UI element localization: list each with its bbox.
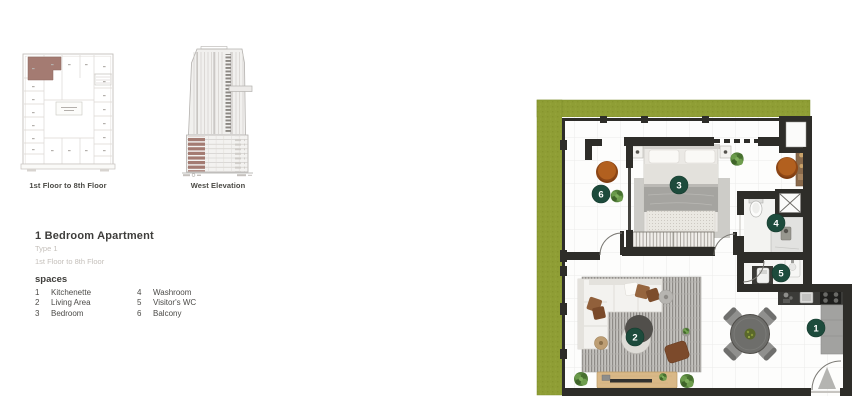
legend-num: 6 bbox=[137, 309, 153, 319]
badge-2: 2 bbox=[626, 328, 644, 346]
legend-label: Visitor's WC bbox=[153, 298, 196, 307]
plant bbox=[659, 373, 667, 381]
closet bbox=[786, 122, 806, 147]
armchair bbox=[596, 161, 618, 183]
tv bbox=[610, 379, 652, 383]
svg-text:4: 4 bbox=[773, 218, 779, 229]
plant bbox=[730, 152, 743, 165]
legend-label: Washroom bbox=[153, 288, 191, 297]
badge-4: 4 bbox=[767, 214, 785, 232]
unit-floors: 1st Floor to 8th Floor bbox=[35, 257, 104, 266]
floor-plan: 1 2 3 4 5 6 bbox=[530, 94, 867, 404]
legend-item-3: 3Bedroom bbox=[35, 309, 91, 319]
badge-3: 3 bbox=[670, 176, 688, 194]
dining-set bbox=[722, 306, 777, 361]
armchair bbox=[776, 157, 798, 179]
legend-num: 2 bbox=[35, 298, 51, 308]
legend-item-1: 1Kitchenette bbox=[35, 288, 91, 298]
elevation-dark-windows bbox=[226, 54, 233, 132]
legend-num: 3 bbox=[35, 309, 51, 319]
key-plan-caption: 1st Floor to 8th Floor bbox=[18, 181, 118, 190]
unit-type: Type 1 bbox=[35, 244, 58, 253]
svg-text:6: 6 bbox=[598, 189, 603, 200]
brochure-page: 1st Floor to 8th Floor W bbox=[0, 0, 867, 420]
legend-item-5: 5Visitor's WC bbox=[137, 298, 196, 308]
legend-column-2: 4Washroom 5Visitor's WC 6Balcony bbox=[137, 288, 196, 319]
svg-text:2: 2 bbox=[632, 332, 637, 343]
legend-column-1: 1Kitchenette 2Living Area 3Bedroom bbox=[35, 288, 91, 319]
legend-label: Balcony bbox=[153, 309, 181, 318]
legend-item-2: 2Living Area bbox=[35, 298, 91, 308]
svg-text:3: 3 bbox=[676, 180, 681, 191]
svg-text:1: 1 bbox=[813, 323, 819, 334]
badge-5: 5 bbox=[772, 264, 790, 282]
key-plan-figure bbox=[20, 50, 116, 178]
legend-item-6: 6Balcony bbox=[137, 309, 196, 319]
legend-num: 4 bbox=[137, 288, 153, 298]
elevation-caption: West Elevation bbox=[174, 181, 262, 190]
stove bbox=[820, 291, 841, 304]
legend-num: 1 bbox=[35, 288, 51, 298]
spaces-heading: spaces bbox=[35, 274, 67, 285]
elevation-highlighted-floors bbox=[188, 136, 205, 171]
badge-1: 1 bbox=[807, 319, 825, 337]
legend-item-4: 4Washroom bbox=[137, 288, 196, 298]
legend-num: 5 bbox=[137, 298, 153, 308]
unit-title: 1 Bedroom Apartment bbox=[35, 230, 154, 242]
legend-label: Kitchenette bbox=[51, 288, 91, 297]
plant bbox=[574, 372, 588, 386]
tv-console bbox=[597, 372, 677, 388]
svg-text:5: 5 bbox=[778, 268, 784, 279]
legend-label: Living Area bbox=[51, 298, 91, 307]
plant bbox=[611, 190, 624, 203]
elevation-figure bbox=[180, 46, 256, 178]
plant bbox=[680, 374, 694, 388]
badge-6: 6 bbox=[592, 185, 610, 203]
legend-label: Bedroom bbox=[51, 309, 83, 318]
